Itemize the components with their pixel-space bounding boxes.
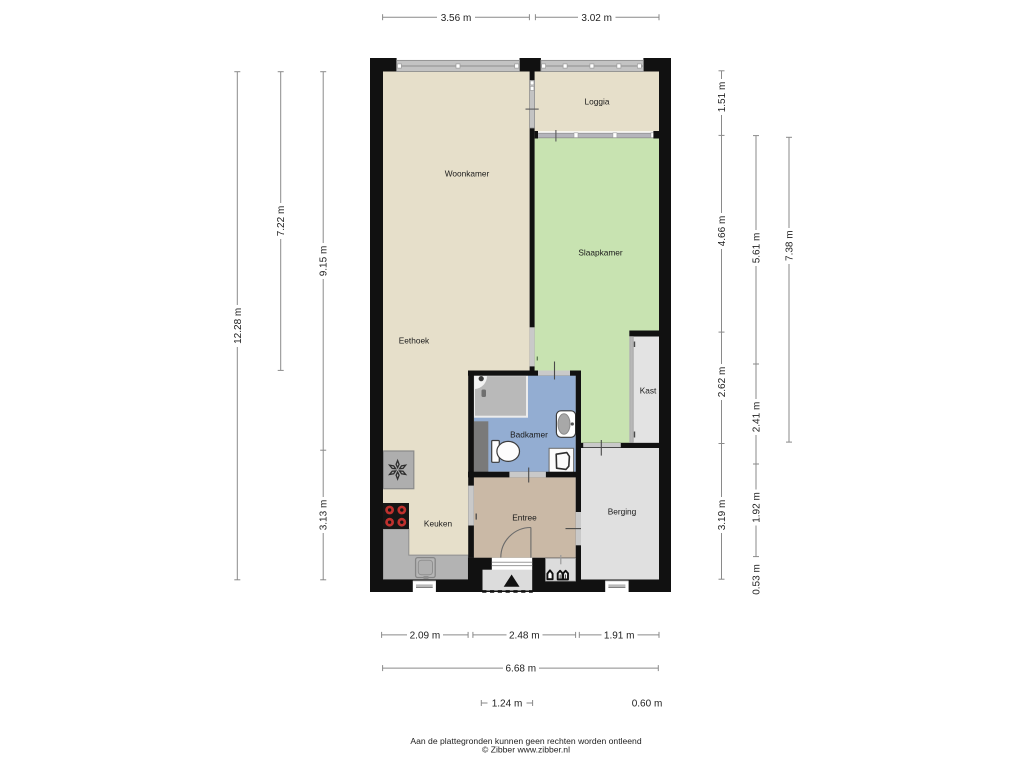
svg-text:Slaapkamer: Slaapkamer	[578, 248, 623, 258]
svg-text:1.92 m: 1.92 m	[752, 492, 763, 523]
svg-text:© Zibber www.zibber.nl: © Zibber www.zibber.nl	[482, 745, 570, 755]
svg-text:7.22 m: 7.22 m	[276, 206, 287, 237]
svg-text:1.24 m: 1.24 m	[492, 699, 523, 710]
svg-text:Loggia: Loggia	[585, 97, 610, 107]
svg-text:7.38 m: 7.38 m	[785, 230, 796, 261]
svg-text:2.62 m: 2.62 m	[717, 367, 728, 398]
svg-text:Badkamer: Badkamer	[510, 430, 548, 440]
svg-text:Berging: Berging	[608, 507, 637, 517]
svg-text:Eethoek: Eethoek	[399, 336, 430, 346]
svg-text:9.15 m: 9.15 m	[319, 246, 330, 277]
svg-text:0.53 m: 0.53 m	[752, 564, 763, 595]
svg-text:3.56 m: 3.56 m	[441, 13, 472, 24]
svg-text:3.13 m: 3.13 m	[319, 500, 330, 531]
svg-text:2.48 m: 2.48 m	[509, 630, 540, 641]
svg-text:Woonkamer: Woonkamer	[445, 169, 490, 179]
svg-text:3.02 m: 3.02 m	[581, 13, 612, 24]
svg-text:4.66 m: 4.66 m	[717, 216, 728, 247]
svg-text:6.68 m: 6.68 m	[506, 664, 537, 675]
svg-text:5.61 m: 5.61 m	[752, 233, 763, 264]
svg-text:Keuken: Keuken	[424, 519, 453, 529]
svg-text:2.41 m: 2.41 m	[752, 402, 763, 433]
svg-text:3.19 m: 3.19 m	[717, 500, 728, 531]
svg-text:Entree: Entree	[512, 513, 537, 523]
svg-text:0.60 m: 0.60 m	[632, 699, 663, 710]
svg-text:2.09 m: 2.09 m	[410, 630, 441, 641]
svg-text:1.91 m: 1.91 m	[604, 630, 635, 641]
svg-text:Kast: Kast	[640, 386, 657, 396]
svg-text:1.51 m: 1.51 m	[717, 82, 728, 113]
svg-text:12.28 m: 12.28 m	[233, 308, 244, 344]
